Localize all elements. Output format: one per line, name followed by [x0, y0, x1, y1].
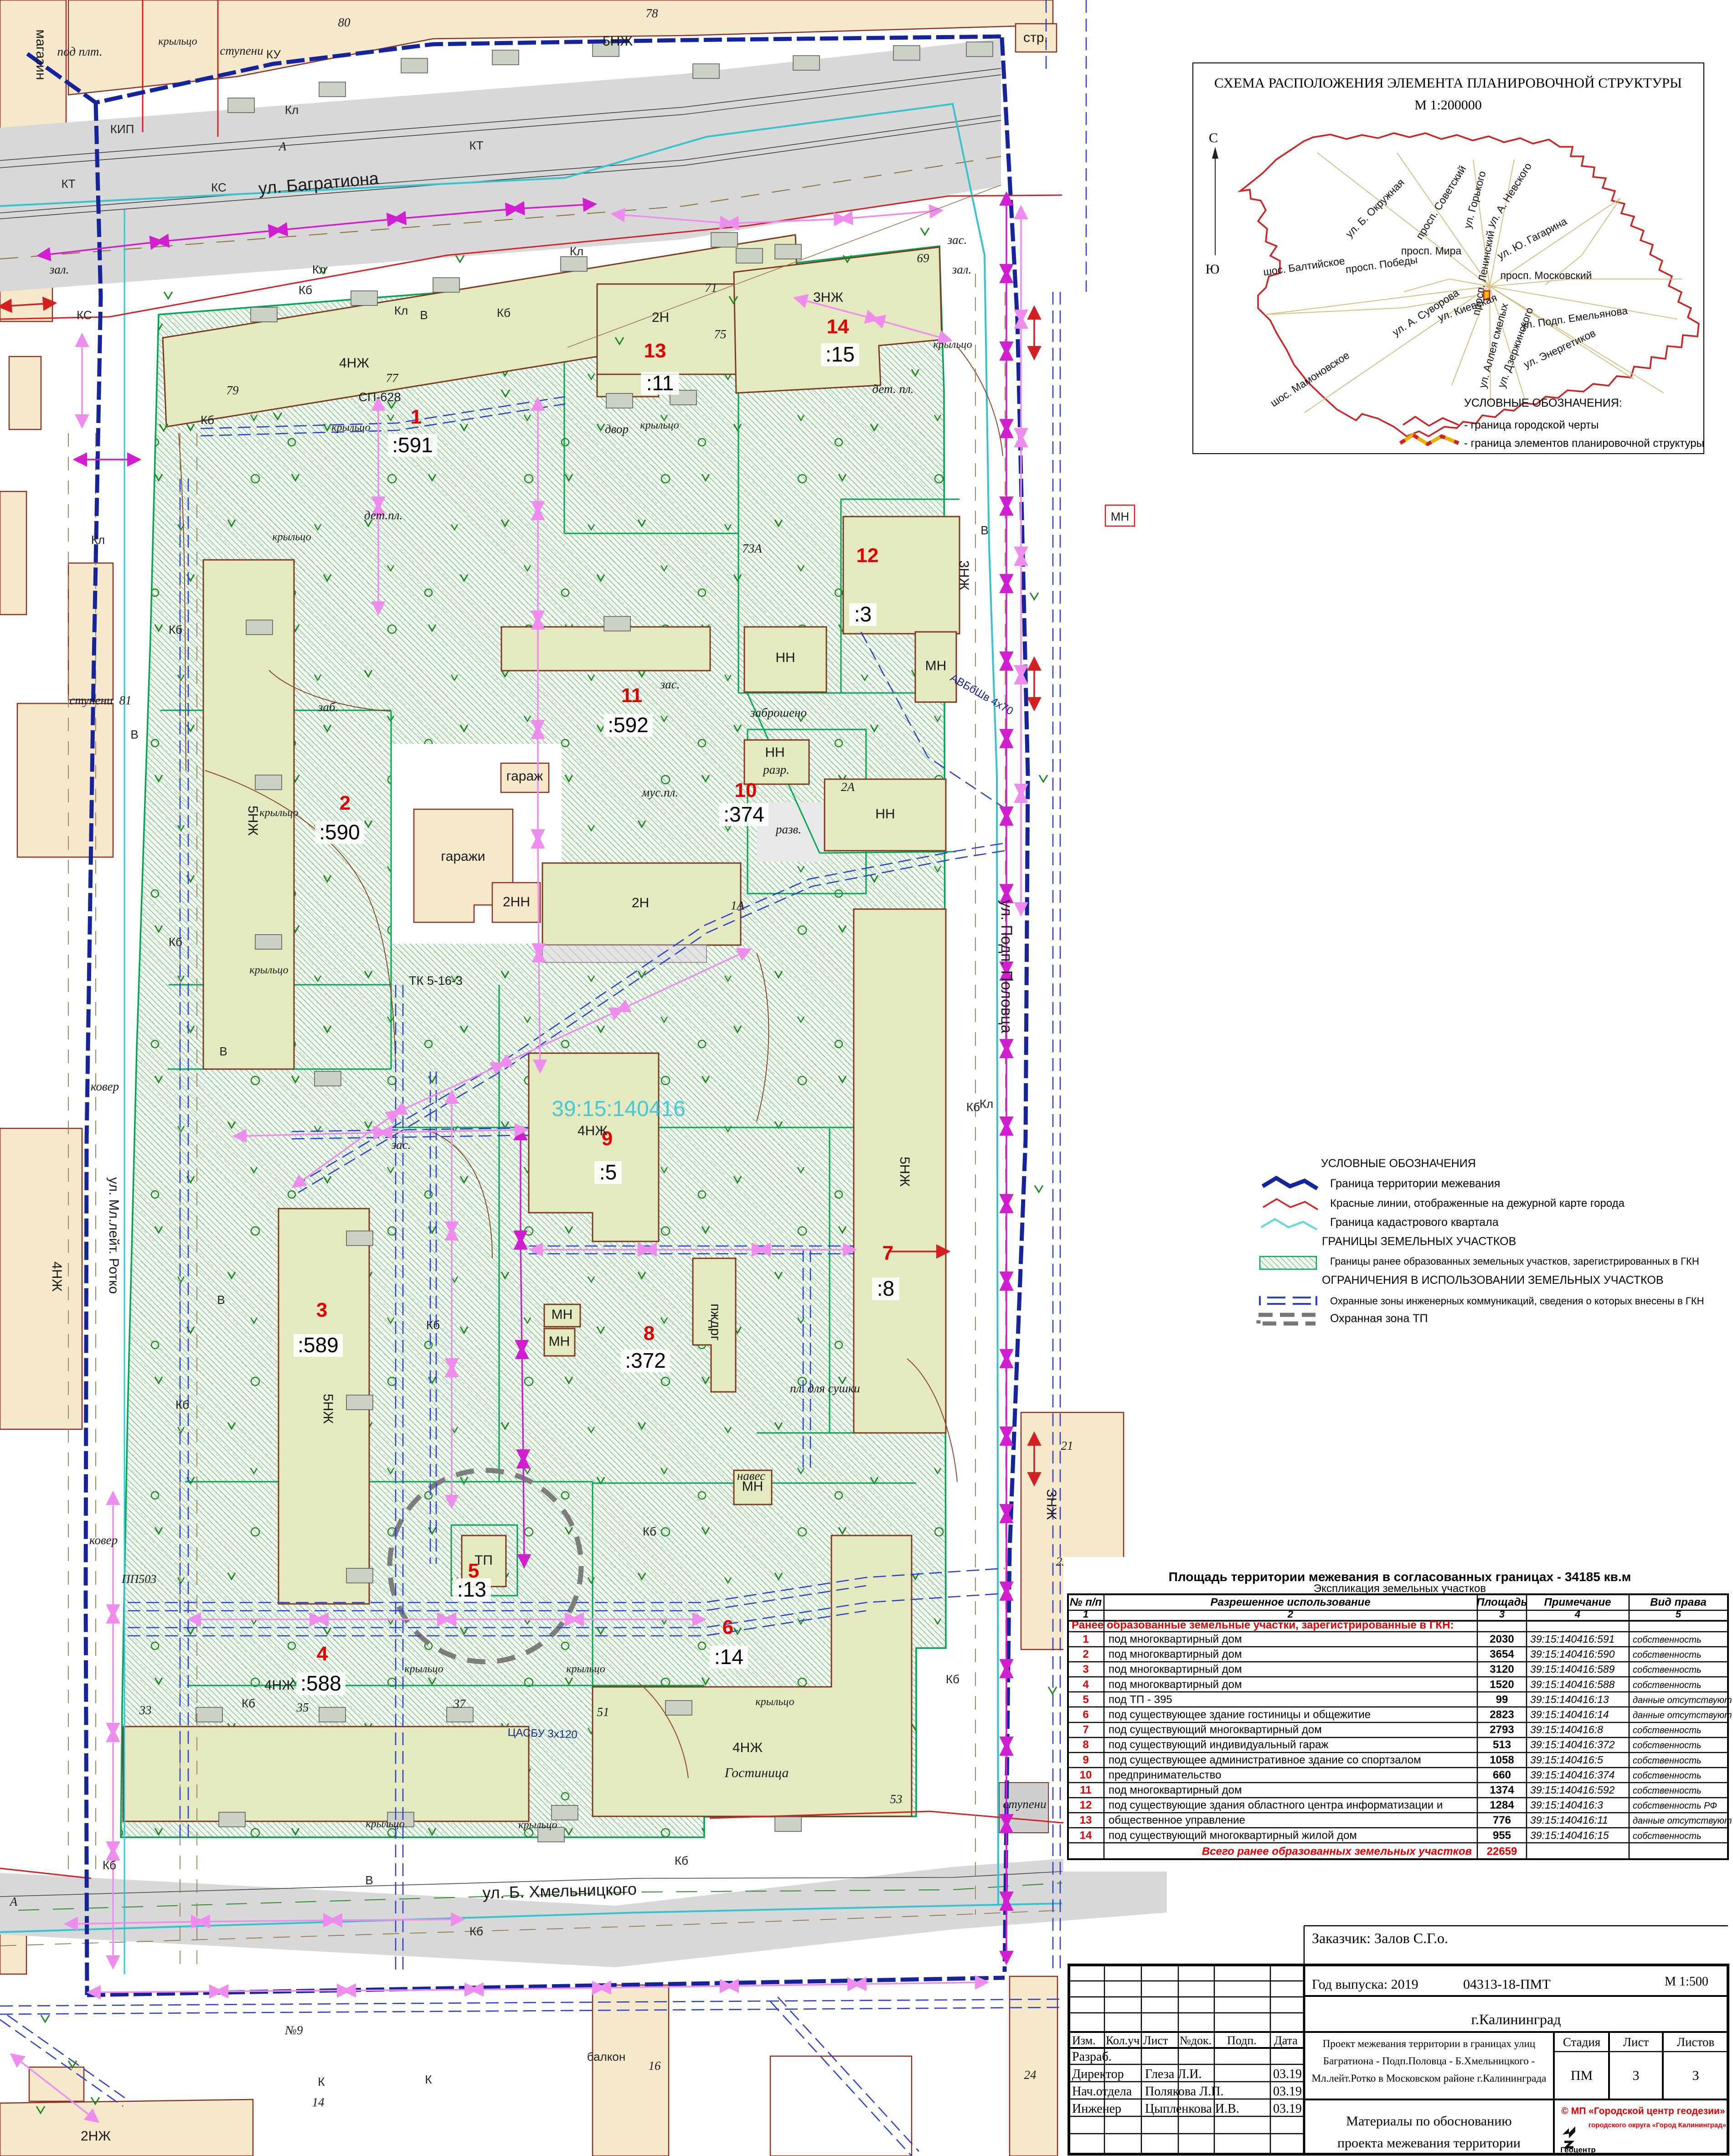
- svg-text:39:15:140416:8: 39:15:140416:8: [1530, 1724, 1603, 1736]
- svg-text:73А: 73А: [742, 542, 762, 555]
- svg-text:Нач.отдела: Нач.отдела: [1072, 2084, 1132, 2099]
- svg-text:77: 77: [386, 371, 399, 385]
- svg-text:3654: 3654: [1490, 1648, 1514, 1660]
- svg-text:39:15:140416:592: 39:15:140416:592: [1530, 1784, 1615, 1796]
- svg-text:зал.: зал.: [952, 263, 972, 276]
- svg-text:35: 35: [296, 1701, 309, 1714]
- svg-text:39:15:140416:11: 39:15:140416:11: [1530, 1814, 1608, 1826]
- svg-text:крыльцо: крыльцо: [518, 1819, 557, 1831]
- svg-text:КУ: КУ: [266, 47, 281, 61]
- svg-text:ПМ: ПМ: [1571, 2068, 1593, 2083]
- svg-text:Директор: Директор: [1072, 2067, 1124, 2081]
- svg-text:НН: НН: [765, 745, 784, 760]
- svg-text:гараж: гараж: [506, 769, 543, 784]
- svg-text:МН: МН: [925, 658, 947, 673]
- svg-text:Материалы по обоснованию: Материалы по обоснованию: [1346, 2114, 1511, 2129]
- svg-text:Дата: Дата: [1274, 2034, 1298, 2047]
- svg-text::5: :5: [599, 1160, 617, 1184]
- svg-text:Кб: Кб: [643, 1525, 656, 1538]
- svg-text:776: 776: [1493, 1814, 1511, 1826]
- svg-text:Мл.лейт.Ротко в Московском рай: Мл.лейт.Ротко в Московском районе г.Кали…: [1312, 2073, 1547, 2084]
- svg-text:24: 24: [1024, 2068, 1037, 2082]
- svg-text:- граница городской черты: - граница городской черты: [1464, 419, 1599, 431]
- svg-text:Геоцентр: Геоцентр: [1560, 2146, 1596, 2154]
- svg-text:№9: №9: [285, 2023, 303, 2037]
- svg-text:39:15:140416:588: 39:15:140416:588: [1530, 1678, 1615, 1690]
- svg-text:Кб: Кб: [946, 1672, 959, 1686]
- svg-text:ступени: ступени: [1003, 1797, 1046, 1811]
- svg-text:№док.: №док.: [1180, 2034, 1212, 2047]
- svg-text:Кб: Кб: [469, 1924, 483, 1938]
- svg-text:С: С: [1209, 130, 1218, 145]
- svg-text:51: 51: [597, 1705, 609, 1719]
- svg-text:1520: 1520: [1490, 1678, 1514, 1691]
- svg-text::372: :372: [625, 1349, 666, 1372]
- svg-text:Кб: Кб: [426, 1318, 440, 1332]
- svg-text:16: 16: [649, 2059, 661, 2073]
- svg-text:Ранее образованные земельные у: Ранее образованные земельные участки, за…: [1072, 1619, 1454, 1631]
- svg-text:под существующие здания област: под существующие здания областного центр…: [1109, 1799, 1443, 1811]
- svg-text:4: 4: [1083, 1678, 1089, 1691]
- svg-text:г.Калининград: г.Калининград: [1471, 2011, 1561, 2027]
- svg-text:Кб: Кб: [497, 306, 511, 320]
- svg-text:под существующее здание гостин: под существующее здание гостиницы и обще…: [1109, 1709, 1371, 1721]
- svg-text:4: 4: [1574, 1608, 1580, 1620]
- svg-text:1284: 1284: [1490, 1799, 1514, 1811]
- svg-text:2823: 2823: [1490, 1709, 1514, 1721]
- svg-text:крыльцо: крыльцо: [272, 531, 311, 543]
- svg-text:71: 71: [705, 281, 717, 295]
- svg-text:10: 10: [735, 779, 757, 801]
- svg-text:Кб: Кб: [675, 1854, 688, 1867]
- svg-text:ТП: ТП: [475, 1553, 493, 1568]
- svg-text:собственность: собственность: [1633, 1831, 1701, 1841]
- svg-text:Проект межевания территории в: Проект межевания территории в границах у…: [1323, 2038, 1535, 2049]
- svg-text:дет.пл.: дет.пл.: [364, 508, 402, 522]
- svg-text:9: 9: [1083, 1754, 1088, 1766]
- svg-text:1058: 1058: [1490, 1754, 1514, 1766]
- svg-text:© МП «Городской центр геодезии: © МП «Городской центр геодезии»: [1561, 2106, 1725, 2116]
- svg-text:2: 2: [340, 792, 351, 814]
- svg-text:1374: 1374: [1490, 1784, 1514, 1796]
- svg-text:Изм.: Изм.: [1072, 2034, 1096, 2047]
- svg-text:под многоквартирный дом: под многоквартирный дом: [1109, 1663, 1242, 1675]
- svg-text:крыльцо: крыльцо: [755, 1696, 794, 1708]
- svg-text:данные отсутствуют: данные отсутствуют: [1633, 1711, 1732, 1721]
- svg-text:данные отсутствуют: данные отсутствуют: [1633, 1816, 1732, 1826]
- svg-text:21: 21: [1061, 1439, 1073, 1453]
- svg-text:6: 6: [722, 1616, 733, 1639]
- svg-text:балкон: балкон: [587, 2050, 625, 2063]
- svg-text:городского округа «Город Калин: городского округа «Город Калининград»: [1589, 2121, 1726, 2129]
- svg-text:Кл: Кл: [285, 103, 299, 117]
- svg-text:5НЖ: 5НЖ: [603, 34, 633, 49]
- svg-text:Подп.: Подп.: [1227, 2034, 1257, 2047]
- svg-text:4НЖ: 4НЖ: [264, 1678, 294, 1693]
- svg-text:12: 12: [1080, 1799, 1092, 1811]
- svg-text::8: :8: [877, 1277, 894, 1300]
- svg-text:39:15:140416:374: 39:15:140416:374: [1530, 1769, 1614, 1781]
- svg-text:собственность: собственность: [1633, 1665, 1701, 1675]
- svg-text::13: :13: [457, 1577, 486, 1601]
- svg-text:ковер: ковер: [89, 1533, 118, 1547]
- svg-text:заброшено: заброшено: [750, 706, 807, 719]
- svg-text:СП-628: СП-628: [359, 390, 401, 404]
- svg-text:ковер: ковер: [91, 1080, 119, 1093]
- svg-text:двор: двор: [605, 422, 629, 436]
- svg-text:1А: 1А: [731, 899, 745, 912]
- svg-text:39:15:140416: 39:15:140416: [552, 1097, 686, 1121]
- svg-text:МН: МН: [1111, 510, 1129, 523]
- svg-text:8: 8: [644, 1322, 655, 1344]
- svg-text:крыльцо: крыльцо: [933, 339, 972, 351]
- svg-text:3НЖ: 3НЖ: [956, 560, 971, 590]
- svg-text:4НЖ: 4НЖ: [578, 1123, 608, 1138]
- svg-text:Заказчик: Залов С.Г.о.: Заказчик: Залов С.Г.о.: [1312, 1930, 1448, 1946]
- svg-text:заб.: заб.: [318, 700, 338, 714]
- svg-text:Кл: Кл: [570, 244, 583, 258]
- svg-text:33: 33: [139, 1703, 152, 1717]
- svg-text:пждрг: пждрг: [708, 1303, 723, 1341]
- svg-text::15: :15: [825, 342, 855, 366]
- svg-text:03.19: 03.19: [1273, 2067, 1302, 2081]
- svg-text:3: 3: [1499, 1608, 1505, 1620]
- svg-text:Разрешенное использование: Разрешенное использование: [1210, 1596, 1370, 1608]
- svg-text:5: 5: [1676, 1608, 1681, 1620]
- svg-text::14: :14: [714, 1645, 743, 1669]
- svg-text:Границы ранее образованных зем: Границы ранее образованных земельных уча…: [1330, 1256, 1699, 1267]
- svg-text:СХЕМА РАСПОЛОЖЕНИЯ ЭЛЕМЕНТА ПЛ: СХЕМА РАСПОЛОЖЕНИЯ ЭЛЕМЕНТА ПЛАНИРОВОЧНО…: [1214, 75, 1682, 91]
- svg-text:Листов: Листов: [1677, 2035, 1714, 2049]
- svg-text:Кл: Кл: [394, 304, 408, 317]
- svg-text:крыльцо: крыльцо: [259, 807, 298, 819]
- svg-text:разв.: разв.: [775, 822, 801, 836]
- svg-text:В: В: [980, 523, 988, 537]
- svg-text:А: А: [278, 140, 287, 153]
- svg-text:Кл: Кл: [91, 533, 105, 547]
- svg-text:513: 513: [1493, 1739, 1511, 1751]
- svg-text:14: 14: [827, 315, 849, 338]
- svg-text:разр.: разр.: [762, 763, 789, 776]
- svg-text:зас.: зас.: [947, 233, 967, 247]
- svg-text:магазин: магазин: [33, 29, 48, 80]
- svg-text:03.19: 03.19: [1273, 2084, 1302, 2099]
- svg-text:В: В: [219, 1044, 227, 1058]
- svg-text:1: 1: [1083, 1633, 1088, 1645]
- svg-text:данные отсутствуют: данные отсутствуют: [1633, 1695, 1732, 1705]
- svg-text:собственность: собственность: [1633, 1635, 1701, 1645]
- svg-text:5НЖ: 5НЖ: [897, 1157, 912, 1187]
- svg-text:собственность: собственность: [1633, 1650, 1701, 1660]
- svg-text:пл. для сушки: пл. для сушки: [790, 1381, 860, 1395]
- svg-text:13: 13: [1080, 1814, 1092, 1826]
- svg-text:МН: МН: [552, 1307, 573, 1322]
- svg-text:3НЖ: 3НЖ: [813, 290, 843, 305]
- svg-text:собственность: собственность: [1633, 1756, 1701, 1766]
- svg-text:Граница кадастрового квартала: Граница кадастрового квартала: [1330, 1216, 1499, 1229]
- svg-text:3: 3: [1633, 2068, 1640, 2083]
- svg-text::591: :591: [392, 433, 433, 457]
- svg-text:Охранная зона ТП: Охранная зона ТП: [1330, 1312, 1428, 1325]
- svg-text:Полякова Л.П.: Полякова Л.П.: [1145, 2084, 1223, 2099]
- svg-text:4НЖ: 4НЖ: [339, 356, 369, 371]
- svg-text:Кб: Кб: [103, 1858, 116, 1872]
- svg-text:3: 3: [1083, 1663, 1088, 1675]
- svg-text:под многоквартирный дом: под многоквартирный дом: [1109, 1633, 1242, 1645]
- svg-text:В: В: [420, 308, 428, 322]
- svg-text:НН: НН: [875, 807, 895, 822]
- svg-text:Лист: Лист: [1143, 2034, 1168, 2047]
- svg-text:собственность: собственность: [1633, 1771, 1701, 1781]
- svg-text:проекта межевания территории: проекта межевания территории: [1337, 2135, 1521, 2151]
- svg-text:ПП503: ПП503: [121, 1572, 157, 1586]
- svg-text:под плт.: под плт.: [57, 45, 103, 58]
- svg-text:2А: 2А: [841, 780, 855, 794]
- svg-text:В: В: [130, 728, 138, 741]
- svg-text:зас.: зас.: [660, 677, 680, 691]
- svg-text:Кб: Кб: [966, 1100, 980, 1114]
- svg-text:4: 4: [317, 1643, 328, 1665]
- svg-text:99: 99: [1496, 1693, 1508, 1706]
- svg-text:собственность: собственность: [1633, 1786, 1701, 1796]
- svg-text:Кб: Кб: [201, 413, 214, 427]
- svg-text:Кл: Кл: [980, 1097, 993, 1111]
- svg-text:ул. Мл.лейт. Ротко: ул. Мл.лейт. Ротко: [106, 1177, 121, 1294]
- svg-text:зас.: зас.: [391, 1138, 411, 1152]
- svg-text:5НЖ: 5НЖ: [320, 1394, 335, 1424]
- svg-text:Кол.уч: Кол.уч: [1106, 2034, 1140, 2047]
- svg-text:Граница территории межевания: Граница территории межевания: [1330, 1177, 1500, 1190]
- svg-text:Инженер: Инженер: [1072, 2102, 1121, 2116]
- svg-text:крыльцо: крыльцо: [158, 36, 197, 47]
- svg-text:предпринимательство: предпринимательство: [1109, 1769, 1222, 1781]
- svg-text:6: 6: [1083, 1709, 1088, 1721]
- svg-text:Всего ранее образованных земел: Всего ранее образованных земельных участ…: [1202, 1845, 1472, 1857]
- svg-text:под существующий многоквартирн: под существующий многоквартирный жилой д…: [1109, 1829, 1357, 1841]
- svg-text:Стадия: Стадия: [1563, 2035, 1600, 2049]
- svg-text:Багратиона - Подп.Половца - Б.: Багратиона - Подп.Половца - Б.Хмельницко…: [1323, 2055, 1535, 2067]
- svg-text::11: :11: [646, 371, 674, 395]
- svg-text:Ю: Ю: [1206, 262, 1220, 277]
- svg-text:ТК 5-16-3: ТК 5-16-3: [409, 974, 463, 988]
- svg-text:660: 660: [1493, 1769, 1511, 1781]
- svg-text:39:15:140416:589: 39:15:140416:589: [1530, 1663, 1615, 1675]
- svg-text:ЦАСБУ 3х120: ЦАСБУ 3х120: [507, 1726, 578, 1741]
- svg-text:75: 75: [714, 327, 727, 341]
- svg-text::589: :589: [298, 1333, 339, 1357]
- svg-text:зал.: зал.: [49, 263, 69, 276]
- svg-text:2030: 2030: [1490, 1633, 1514, 1645]
- svg-text:39:15:140416:13: 39:15:140416:13: [1530, 1693, 1609, 1705]
- svg-text:ОГРАНИЧЕНИЯ В ИСПОЛЬЗОВАНИИ ЗЕ: ОГРАНИЧЕНИЯ В ИСПОЛЬЗОВАНИИ ЗЕМЕЛЬНЫХ УЧ…: [1322, 1274, 1664, 1287]
- svg-text:1: 1: [411, 406, 422, 428]
- svg-text:крыльцо: крыльцо: [404, 1663, 443, 1675]
- svg-text:13: 13: [644, 340, 666, 362]
- svg-text::374: :374: [723, 802, 764, 826]
- svg-text:10: 10: [1080, 1769, 1092, 1781]
- svg-text:крыльцо: крыльцо: [640, 419, 679, 431]
- svg-text:7: 7: [1083, 1724, 1088, 1736]
- svg-text:Охранные зоны инженерных комму: Охранные зоны инженерных коммуникаций, с…: [1330, 1295, 1704, 1307]
- svg-text:№ п/п: № п/п: [1070, 1596, 1102, 1608]
- svg-text:53: 53: [890, 1792, 903, 1806]
- svg-text::592: :592: [608, 713, 649, 737]
- svg-text:Глеза Л.И.: Глеза Л.И.: [1145, 2067, 1202, 2081]
- svg-text:КТ: КТ: [61, 177, 75, 191]
- svg-text:ступени: ступени: [69, 693, 113, 707]
- svg-text:39:15:140416:590: 39:15:140416:590: [1530, 1648, 1615, 1660]
- svg-text:крыльцо: крыльцо: [249, 964, 288, 976]
- svg-text:2Н: 2Н: [632, 895, 649, 910]
- svg-text:3120: 3120: [1490, 1663, 1514, 1675]
- svg-text:Кб: Кб: [242, 1696, 255, 1710]
- svg-text:22659: 22659: [1487, 1845, 1517, 1857]
- svg-text:навес: навес: [737, 1469, 765, 1483]
- svg-text:В: В: [217, 1293, 225, 1307]
- svg-text:39:15:140416:372: 39:15:140416:372: [1530, 1739, 1615, 1751]
- svg-text:Лист: Лист: [1623, 2035, 1649, 2049]
- svg-text:4НЖ: 4НЖ: [49, 1262, 64, 1292]
- svg-text:А: А: [9, 1895, 18, 1908]
- svg-text:дет. пл.: дет. пл.: [872, 382, 914, 396]
- svg-text:КС: КС: [211, 181, 227, 194]
- svg-text:Гостиница: Гостиница: [724, 1765, 789, 1780]
- svg-text:39:15:140416:15: 39:15:140416:15: [1530, 1829, 1609, 1841]
- svg-text:собственность: собственность: [1633, 1741, 1701, 1751]
- svg-text:Разраб.: Разраб.: [1072, 2050, 1112, 2064]
- svg-text:81: 81: [119, 693, 132, 707]
- svg-text:04313-18-ПМТ: 04313-18-ПМТ: [1463, 1977, 1551, 1992]
- svg-text:под существующий многоквартирн: под существующий многоквартирный дом: [1109, 1724, 1322, 1736]
- svg-text:гаражи: гаражи: [441, 849, 485, 864]
- svg-text:1: 1: [1083, 1608, 1088, 1620]
- svg-text:ступени: ступени: [220, 44, 263, 57]
- svg-text:11: 11: [621, 684, 643, 707]
- svg-text:ГРАНИЦЫ ЗЕМЕЛЬНЫХ УЧАСТКОВ: ГРАНИЦЫ ЗЕМЕЛЬНЫХ УЧАСТКОВ: [1322, 1235, 1516, 1248]
- svg-text:КТ: КТ: [469, 139, 483, 152]
- svg-text:2Н: 2Н: [652, 310, 669, 325]
- svg-text:Кл: Кл: [312, 263, 326, 276]
- svg-text:5НЖ: 5НЖ: [245, 806, 260, 836]
- svg-text:собственность: собственность: [1633, 1726, 1701, 1736]
- svg-text:39:15:140416:14: 39:15:140416:14: [1530, 1709, 1609, 1721]
- svg-text:собственность РФ: собственность РФ: [1633, 1801, 1717, 1811]
- svg-text:2НН: 2НН: [503, 894, 530, 910]
- svg-text:КС: КС: [77, 308, 92, 322]
- svg-text:Вид права: Вид права: [1650, 1596, 1707, 1608]
- svg-text:Площадь территории межевания в: Площадь территории межевания в согласова…: [1169, 1570, 1631, 1584]
- svg-text:12: 12: [856, 544, 879, 567]
- svg-text:80: 80: [338, 16, 351, 29]
- svg-text:под существующее административ: под существующее административное здание…: [1109, 1754, 1421, 1766]
- svg-text:общественное управление: общественное управление: [1109, 1814, 1245, 1826]
- svg-text:2: 2: [1287, 1608, 1294, 1620]
- svg-text:Год выпуска: 2019: Год выпуска: 2019: [1312, 1977, 1418, 1992]
- svg-text:КИП: КИП: [110, 122, 134, 136]
- svg-text:К: К: [425, 2073, 432, 2086]
- svg-text:8: 8: [1083, 1739, 1088, 1751]
- svg-text:Цыпленкова И.В.: Цыпленкова И.В.: [1145, 2102, 1239, 2116]
- svg-text:под существующий индивидуальны: под существующий индивидуальный гараж: [1109, 1739, 1328, 1751]
- svg-text:НН: НН: [775, 650, 795, 665]
- svg-text:39:15:140416:591: 39:15:140416:591: [1530, 1633, 1614, 1645]
- svg-text:МН: МН: [549, 1334, 570, 1349]
- svg-text:5: 5: [1083, 1693, 1088, 1706]
- svg-text:3: 3: [316, 1299, 327, 1321]
- svg-text:ЗНЖ: ЗНЖ: [1044, 1489, 1059, 1520]
- svg-text:Кб: Кб: [175, 1398, 189, 1411]
- svg-text:78: 78: [646, 6, 659, 20]
- svg-text:4НЖ: 4НЖ: [732, 1740, 763, 1755]
- svg-text:крыльцо: крыльцо: [366, 1818, 404, 1830]
- svg-text:УСЛОВНЫЕ ОБОЗНАЧЕНИЯ:: УСЛОВНЫЕ ОБОЗНАЧЕНИЯ:: [1464, 397, 1622, 409]
- svg-text:просп. Московский: просп. Московский: [1501, 269, 1592, 281]
- svg-text:79: 79: [227, 383, 239, 397]
- svg-text:под многоквартирный дом: под многоквартирный дом: [1109, 1678, 1242, 1691]
- svg-text:955: 955: [1493, 1829, 1511, 1841]
- svg-text:под многоквартирный дом: под многоквартирный дом: [1109, 1784, 1242, 1796]
- svg-text:Кб: Кб: [169, 623, 182, 636]
- svg-text:14: 14: [1080, 1829, 1092, 1841]
- svg-text:К: К: [318, 2075, 325, 2089]
- svg-text:собственность: собственность: [1633, 1680, 1701, 1690]
- svg-text:Примечание: Примечание: [1544, 1596, 1611, 1608]
- svg-text:2793: 2793: [1490, 1724, 1514, 1736]
- svg-text:14: 14: [312, 2095, 325, 2109]
- svg-text:2: 2: [1083, 1648, 1088, 1660]
- svg-text::590: :590: [319, 820, 360, 844]
- svg-text:под многоквартирный дом: под многоквартирный дом: [1109, 1648, 1242, 1660]
- svg-text:11: 11: [1080, 1784, 1091, 1796]
- svg-text:37: 37: [453, 1697, 467, 1711]
- svg-text:М 1:500: М 1:500: [1665, 1975, 1708, 1989]
- svg-text:03.19: 03.19: [1273, 2102, 1302, 2116]
- svg-text:- граница элементов планировоч: - граница элементов планировочной структ…: [1464, 437, 1704, 450]
- svg-text:Экспликация земельных участков: Экспликация земельных участков: [1314, 1582, 1486, 1595]
- svg-text:Площадь: Площадь: [1476, 1596, 1527, 1608]
- svg-text:2НЖ: 2НЖ: [81, 2129, 111, 2144]
- svg-text:Кб: Кб: [299, 283, 312, 297]
- svg-text:УСЛОВНЫЕ ОБОЗНАЧЕНИЯ: УСЛОВНЫЕ ОБОЗНАЧЕНИЯ: [1321, 1157, 1476, 1170]
- svg-text:69: 69: [917, 251, 930, 265]
- svg-text:М 1:200000: М 1:200000: [1414, 98, 1482, 113]
- svg-text:7: 7: [882, 1242, 893, 1264]
- svg-text:мус.пл.: мус.пл.: [641, 786, 678, 799]
- svg-text::588: :588: [300, 1671, 341, 1695]
- svg-text:39:15:140416:3: 39:15:140416:3: [1530, 1799, 1603, 1811]
- svg-text:Красные линии, отображенные на: Красные линии, отображенные на дежурной …: [1330, 1197, 1625, 1210]
- svg-text:стр.: стр.: [1023, 30, 1048, 45]
- svg-text:крыльцо: крыльцо: [566, 1663, 605, 1675]
- svg-text:крыльцо: крыльцо: [331, 422, 370, 434]
- svg-text:В: В: [365, 1873, 373, 1887]
- svg-text:ул. Подп. Половца: ул. Подп. Половца: [998, 900, 1015, 1034]
- svg-text::3: :3: [854, 602, 872, 626]
- svg-text:39:15:140416:5: 39:15:140416:5: [1530, 1754, 1603, 1766]
- svg-text:под ТП - 395: под ТП - 395: [1109, 1693, 1172, 1706]
- svg-text:Кб: Кб: [169, 935, 182, 949]
- svg-text:3: 3: [1692, 2068, 1699, 2083]
